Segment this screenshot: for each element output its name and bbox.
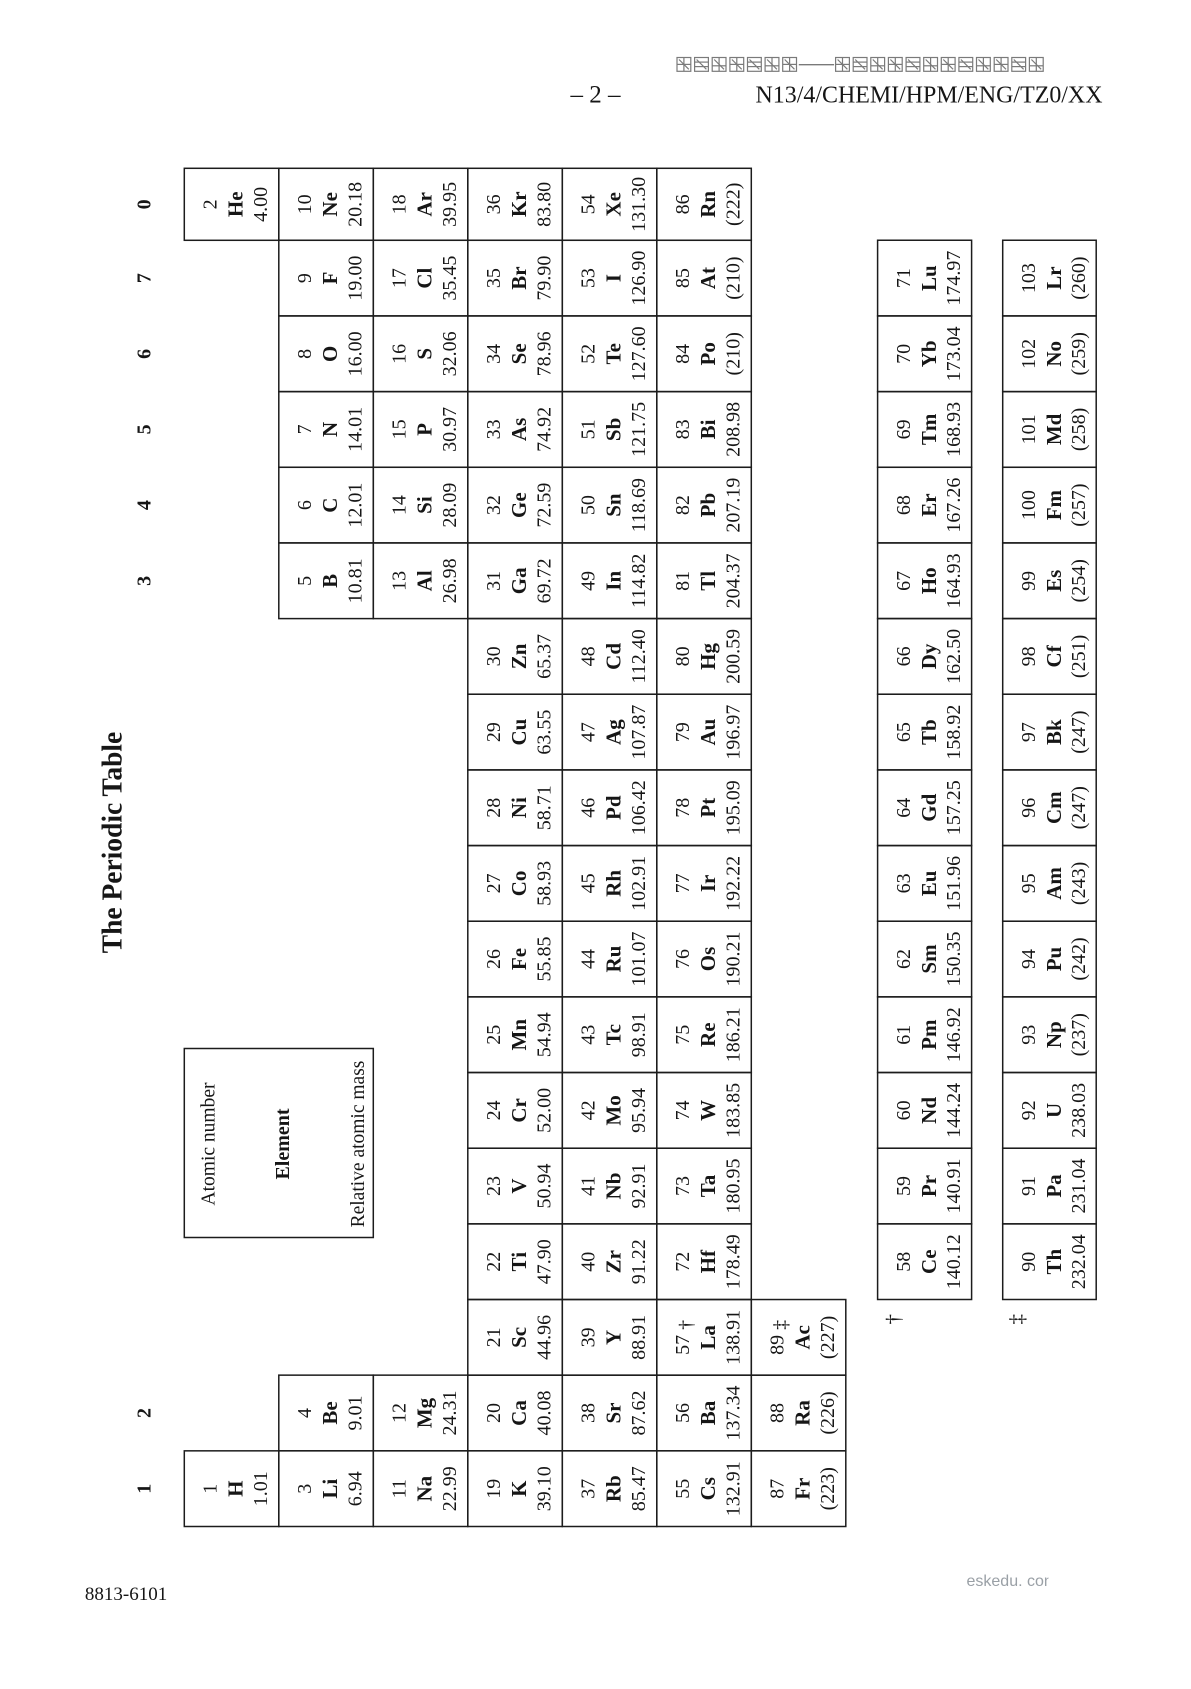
svg-text:In: In — [602, 571, 626, 591]
svg-text:88: 88 — [767, 1403, 789, 1423]
svg-text:Pd: Pd — [602, 795, 626, 820]
svg-text:48: 48 — [578, 646, 600, 666]
svg-text:14.01: 14.01 — [344, 407, 366, 452]
svg-text:22: 22 — [483, 1252, 505, 1272]
svg-text:168.93: 168.93 — [943, 402, 965, 457]
svg-text:Te: Te — [602, 343, 626, 364]
svg-text:Re: Re — [696, 1022, 720, 1046]
svg-text:114.82: 114.82 — [628, 554, 650, 608]
svg-text:Ac: Ac — [791, 1325, 815, 1350]
svg-text:112.40: 112.40 — [628, 629, 650, 683]
svg-text:Sc: Sc — [507, 1327, 531, 1348]
svg-text:79: 79 — [672, 722, 694, 742]
svg-text:Cl: Cl — [413, 267, 437, 288]
svg-text:Zn: Zn — [507, 643, 531, 669]
svg-text:U: U — [1042, 1103, 1066, 1118]
svg-text:Tc: Tc — [602, 1024, 626, 1045]
svg-text:6.94: 6.94 — [344, 1471, 366, 1506]
svg-text:Cu: Cu — [507, 718, 531, 745]
svg-text:Kr: Kr — [507, 191, 531, 217]
svg-text:12.01: 12.01 — [344, 483, 366, 528]
svg-text:144.24: 144.24 — [943, 1083, 965, 1138]
svg-text:15: 15 — [389, 419, 411, 439]
svg-text:47: 47 — [578, 722, 600, 742]
svg-text:82: 82 — [672, 495, 694, 515]
svg-text:41: 41 — [578, 1176, 600, 1196]
svg-text:174.97: 174.97 — [943, 251, 965, 306]
svg-text:Ce: Ce — [917, 1249, 941, 1274]
svg-text:eskedu. com: eskedu. com — [967, 1573, 1058, 1590]
svg-text:Th: Th — [1042, 1249, 1066, 1275]
svg-text:(259): (259) — [1068, 332, 1090, 375]
svg-text:196.97: 196.97 — [722, 705, 744, 760]
svg-text:63.55: 63.55 — [533, 710, 555, 755]
svg-text:17: 17 — [389, 268, 411, 288]
svg-text:Tb: Tb — [917, 719, 941, 745]
svg-text:B: B — [318, 574, 342, 588]
svg-text:No: No — [1042, 341, 1066, 367]
svg-text:Ir: Ir — [696, 875, 720, 893]
svg-text:137.34: 137.34 — [722, 1386, 744, 1441]
svg-text:Cd: Cd — [602, 643, 626, 670]
svg-text:79.90: 79.90 — [533, 256, 555, 301]
svg-text:– 2 –: – 2 – — [570, 82, 622, 109]
svg-text:204.37: 204.37 — [722, 553, 744, 608]
svg-text:167.26: 167.26 — [943, 478, 965, 533]
svg-text:30.97: 30.97 — [439, 407, 461, 452]
svg-text:4: 4 — [134, 500, 156, 510]
svg-text:‡: ‡ — [1005, 1314, 1029, 1325]
svg-text:(223): (223) — [817, 1467, 839, 1510]
svg-text:93: 93 — [1018, 1025, 1040, 1045]
svg-text:91.22: 91.22 — [628, 1239, 650, 1284]
svg-text:87: 87 — [767, 1479, 789, 1499]
svg-text:Fm: Fm — [1042, 489, 1066, 520]
svg-text:57 †: 57 † — [672, 1320, 698, 1355]
svg-text:18: 18 — [389, 194, 411, 214]
svg-text:Ga: Ga — [507, 567, 531, 594]
svg-text:92.91: 92.91 — [628, 1164, 650, 1209]
svg-text:157.25: 157.25 — [943, 780, 965, 835]
svg-text:Al: Al — [413, 570, 437, 591]
svg-text:150.35: 150.35 — [943, 932, 965, 987]
svg-text:Co: Co — [507, 871, 531, 897]
svg-text:207.19: 207.19 — [722, 478, 744, 533]
svg-text:5: 5 — [294, 576, 316, 586]
svg-text:81: 81 — [672, 571, 694, 591]
svg-text:132.91: 132.91 — [722, 1461, 744, 1516]
svg-text:Relative atomic mass: Relative atomic mass — [348, 1061, 369, 1228]
svg-text:W: W — [696, 1100, 720, 1121]
svg-text:Nb: Nb — [602, 1173, 626, 1200]
svg-text:33: 33 — [483, 419, 505, 439]
svg-text:68: 68 — [893, 495, 915, 515]
svg-text:V: V — [507, 1178, 531, 1193]
svg-text:1: 1 — [134, 1484, 156, 1494]
svg-text:107.87: 107.87 — [628, 705, 650, 760]
svg-text:The Periodic Table: The Periodic Table — [98, 732, 129, 954]
svg-text:20.18: 20.18 — [344, 182, 366, 227]
svg-text:(210): (210) — [722, 256, 744, 299]
svg-text:Gd: Gd — [917, 793, 941, 821]
svg-text:Md: Md — [1042, 413, 1066, 445]
svg-text:88.91: 88.91 — [628, 1315, 650, 1360]
svg-text:83.80: 83.80 — [533, 182, 555, 227]
svg-text:9: 9 — [294, 273, 316, 283]
svg-text:59: 59 — [893, 1176, 915, 1196]
svg-text:72: 72 — [672, 1252, 694, 1272]
svg-text:6: 6 — [294, 500, 316, 510]
svg-text:Na: Na — [413, 1475, 437, 1501]
svg-text:65.37: 65.37 — [533, 634, 555, 679]
svg-text:12: 12 — [389, 1403, 411, 1423]
svg-text:36: 36 — [483, 194, 505, 214]
svg-text:67: 67 — [893, 571, 915, 591]
svg-text:40: 40 — [578, 1252, 600, 1272]
svg-text:N13/4/CHEMI/HPM/ENG/TZ0/XX: N13/4/CHEMI/HPM/ENG/TZ0/XX — [756, 82, 1103, 109]
svg-text:†: † — [882, 1314, 906, 1325]
svg-text:Bi: Bi — [696, 419, 720, 439]
svg-text:Fr: Fr — [791, 1478, 815, 1500]
svg-text:Hg: Hg — [696, 642, 720, 669]
svg-text:39.10: 39.10 — [533, 1466, 555, 1511]
svg-text:C: C — [318, 498, 342, 513]
svg-text:50: 50 — [578, 495, 600, 515]
svg-text:Pm: Pm — [917, 1019, 941, 1050]
svg-text:92: 92 — [1018, 1100, 1040, 1120]
svg-text:Atomic number: Atomic number — [199, 1082, 220, 1205]
svg-text:238.03: 238.03 — [1068, 1083, 1090, 1138]
svg-text:140.12: 140.12 — [943, 1234, 965, 1289]
svg-text:180.95: 180.95 — [722, 1159, 744, 1214]
svg-text:4.00: 4.00 — [250, 187, 272, 222]
svg-text:84: 84 — [672, 344, 694, 364]
svg-text:(210): (210) — [722, 332, 744, 375]
svg-text:25: 25 — [483, 1025, 505, 1045]
svg-text:97: 97 — [1018, 722, 1040, 742]
svg-text:(251): (251) — [1068, 635, 1090, 678]
svg-text:55: 55 — [672, 1479, 694, 1499]
svg-text:30: 30 — [483, 646, 505, 666]
svg-text:78.96: 78.96 — [533, 331, 555, 376]
svg-text:232.04: 232.04 — [1068, 1234, 1090, 1289]
svg-text:26.98: 26.98 — [439, 558, 461, 603]
svg-text:95: 95 — [1018, 873, 1040, 893]
svg-text:Pb: Pb — [696, 493, 720, 518]
svg-text:89 ‡: 89 ‡ — [767, 1320, 793, 1355]
svg-text:Dy: Dy — [917, 643, 941, 669]
svg-text:Se: Se — [507, 343, 531, 364]
svg-text:94: 94 — [1018, 949, 1040, 969]
svg-text:83: 83 — [672, 419, 694, 439]
svg-text:Ta: Ta — [696, 1174, 720, 1197]
svg-text:Cr: Cr — [507, 1098, 531, 1123]
svg-text:56: 56 — [672, 1403, 694, 1423]
svg-text:Rn: Rn — [696, 191, 720, 218]
svg-text:Ca: Ca — [507, 1400, 531, 1426]
svg-text:178.49: 178.49 — [722, 1234, 744, 1289]
svg-text:35.45: 35.45 — [439, 256, 461, 301]
svg-text:Eu: Eu — [917, 870, 941, 896]
svg-text:(254): (254) — [1068, 559, 1090, 602]
svg-text:138.91: 138.91 — [722, 1310, 744, 1365]
svg-text:Pa: Pa — [1042, 1174, 1066, 1198]
svg-text:Cm: Cm — [1042, 791, 1066, 824]
svg-text:121.75: 121.75 — [628, 402, 650, 457]
svg-text:60: 60 — [893, 1100, 915, 1120]
svg-text:16: 16 — [389, 344, 411, 364]
svg-text:53: 53 — [578, 268, 600, 288]
svg-text:(226): (226) — [817, 1391, 839, 1434]
svg-text:3: 3 — [294, 1484, 316, 1494]
svg-text:10.81: 10.81 — [344, 558, 366, 603]
svg-text:43: 43 — [578, 1025, 600, 1045]
svg-text:63: 63 — [893, 873, 915, 893]
svg-text:Zr: Zr — [602, 1250, 626, 1273]
svg-text:52: 52 — [578, 344, 600, 364]
svg-text:102: 102 — [1018, 339, 1040, 369]
svg-text:27: 27 — [483, 873, 505, 893]
svg-text:65: 65 — [893, 722, 915, 742]
svg-text:Es: Es — [1042, 570, 1066, 592]
svg-text:146.92: 146.92 — [943, 1007, 965, 1062]
svg-text:(247): (247) — [1068, 710, 1090, 753]
svg-text:23: 23 — [483, 1176, 505, 1196]
svg-text:26: 26 — [483, 949, 505, 969]
svg-text:As: As — [507, 418, 531, 441]
svg-text:8: 8 — [294, 349, 316, 359]
svg-text:Be: Be — [318, 1401, 342, 1424]
svg-text:(257): (257) — [1068, 483, 1090, 526]
svg-text:Au: Au — [696, 718, 720, 745]
svg-text:Am: Am — [1042, 867, 1066, 900]
svg-text:7: 7 — [134, 273, 156, 283]
svg-text:80: 80 — [672, 646, 694, 666]
svg-text:7: 7 — [294, 424, 316, 434]
svg-text:47.90: 47.90 — [533, 1239, 555, 1284]
svg-text:85: 85 — [672, 268, 694, 288]
svg-text:Po: Po — [696, 342, 720, 365]
svg-text:Sb: Sb — [602, 418, 626, 441]
svg-text:183.85: 183.85 — [722, 1083, 744, 1138]
svg-text:Ne: Ne — [318, 192, 342, 217]
svg-text:24.31: 24.31 — [439, 1391, 461, 1436]
svg-text:44.96: 44.96 — [533, 1315, 555, 1360]
svg-text:1: 1 — [200, 1484, 222, 1494]
svg-text:231.04: 231.04 — [1068, 1159, 1090, 1214]
svg-text:Pr: Pr — [917, 1175, 941, 1197]
svg-text:39: 39 — [578, 1327, 600, 1347]
svg-text:28.09: 28.09 — [439, 483, 461, 528]
svg-text:127.60: 127.60 — [628, 326, 650, 381]
svg-text:195.09: 195.09 — [722, 780, 744, 835]
svg-text:Yb: Yb — [917, 340, 941, 367]
svg-text:3: 3 — [134, 576, 156, 586]
svg-text:Ra: Ra — [791, 1400, 815, 1426]
svg-text:P: P — [413, 423, 437, 436]
svg-text:35: 35 — [483, 268, 505, 288]
svg-text:46: 46 — [578, 798, 600, 818]
svg-text:21: 21 — [483, 1327, 505, 1347]
svg-text:86: 86 — [672, 194, 694, 214]
svg-text:Tm: Tm — [917, 413, 941, 445]
svg-text:22.99: 22.99 — [439, 1466, 461, 1511]
svg-text:(227): (227) — [817, 1316, 839, 1359]
svg-text:F: F — [318, 272, 342, 285]
svg-text:64: 64 — [893, 798, 915, 818]
svg-text:Np: Np — [1042, 1021, 1066, 1048]
svg-text:72.59: 72.59 — [533, 483, 555, 528]
svg-text:162.50: 162.50 — [943, 629, 965, 684]
svg-text:Mn: Mn — [507, 1019, 531, 1051]
svg-text:42: 42 — [578, 1100, 600, 1120]
svg-text:La: La — [696, 1325, 720, 1350]
svg-text:Ni: Ni — [507, 797, 531, 818]
svg-text:85.47: 85.47 — [628, 1466, 650, 1511]
svg-text:Ag: Ag — [602, 719, 626, 745]
svg-text:44: 44 — [578, 949, 600, 969]
svg-text:Lu: Lu — [917, 265, 941, 291]
svg-text:9.01: 9.01 — [344, 1396, 366, 1431]
svg-text:74: 74 — [672, 1100, 694, 1120]
svg-text:H: H — [224, 1481, 248, 1497]
svg-text:208.98: 208.98 — [722, 402, 744, 457]
svg-text:31: 31 — [483, 571, 505, 591]
svg-text:101.07: 101.07 — [628, 932, 650, 987]
svg-text:He: He — [224, 191, 248, 217]
svg-text:N: N — [318, 422, 342, 437]
svg-text:Mo: Mo — [602, 1095, 626, 1125]
svg-text:Bk: Bk — [1042, 719, 1066, 745]
svg-text:74.92: 74.92 — [533, 407, 555, 452]
svg-text:Er: Er — [917, 493, 941, 516]
svg-text:Pu: Pu — [1042, 946, 1066, 971]
svg-text:11: 11 — [389, 1479, 411, 1498]
svg-text:Pt: Pt — [696, 798, 720, 818]
svg-text:Ho: Ho — [917, 567, 941, 594]
svg-text:50.94: 50.94 — [533, 1164, 555, 1209]
svg-text:5: 5 — [134, 424, 156, 434]
svg-text:73: 73 — [672, 1176, 694, 1196]
svg-text:10: 10 — [294, 194, 316, 214]
svg-text:98.91: 98.91 — [628, 1012, 650, 1057]
svg-text:Mg: Mg — [413, 1397, 437, 1428]
svg-text:34: 34 — [483, 344, 505, 364]
svg-text:16.00: 16.00 — [344, 331, 366, 376]
svg-text:95.94: 95.94 — [628, 1088, 650, 1133]
svg-text:S: S — [413, 348, 437, 360]
svg-text:151.96: 151.96 — [943, 856, 965, 911]
svg-text:101: 101 — [1018, 414, 1040, 444]
svg-text:Ar: Ar — [413, 192, 437, 217]
svg-text:173.04: 173.04 — [943, 326, 965, 381]
svg-text:118.69: 118.69 — [628, 478, 650, 532]
svg-text:58.71: 58.71 — [533, 785, 555, 830]
svg-text:K: K — [507, 1480, 531, 1497]
svg-text:190.21: 190.21 — [722, 932, 744, 987]
svg-text:51: 51 — [578, 419, 600, 439]
svg-text:71: 71 — [893, 268, 915, 288]
svg-text:Os: Os — [696, 947, 720, 972]
svg-text:Element: Element — [272, 1108, 294, 1179]
svg-text:75: 75 — [672, 1025, 694, 1045]
svg-text:54: 54 — [578, 194, 600, 214]
svg-text:Ti: Ti — [507, 1252, 531, 1272]
svg-text:55.85: 55.85 — [533, 937, 555, 982]
svg-text:Sn: Sn — [602, 493, 626, 517]
svg-text:Ge: Ge — [507, 492, 531, 518]
svg-text:38: 38 — [578, 1403, 600, 1423]
svg-text:99: 99 — [1018, 571, 1040, 591]
svg-text:(243): (243) — [1068, 862, 1090, 905]
svg-text:24: 24 — [483, 1100, 505, 1120]
svg-text:Cf: Cf — [1042, 644, 1066, 667]
svg-text:2: 2 — [200, 199, 222, 209]
svg-text:186.21: 186.21 — [722, 1007, 744, 1062]
svg-text:158.92: 158.92 — [943, 705, 965, 760]
svg-text:69.72: 69.72 — [533, 558, 555, 603]
svg-text:19.00: 19.00 — [344, 256, 366, 301]
svg-text:Fe: Fe — [507, 948, 531, 970]
svg-text:102.91: 102.91 — [628, 856, 650, 911]
svg-text:29: 29 — [483, 722, 505, 742]
svg-text:(258): (258) — [1068, 408, 1090, 451]
svg-text:76: 76 — [672, 949, 694, 969]
svg-text:Xe: Xe — [602, 192, 626, 217]
svg-text:32.06: 32.06 — [439, 331, 461, 376]
svg-text:37: 37 — [578, 1479, 600, 1499]
svg-text:200.59: 200.59 — [722, 629, 744, 684]
svg-text:O: O — [318, 346, 342, 362]
svg-text:87.62: 87.62 — [628, 1391, 650, 1436]
svg-text:Rh: Rh — [602, 870, 626, 897]
svg-text:66: 66 — [893, 646, 915, 666]
svg-text:14: 14 — [389, 495, 411, 515]
svg-text:Cs: Cs — [696, 1477, 720, 1500]
svg-text:Sr: Sr — [602, 1403, 626, 1424]
svg-text:32: 32 — [483, 495, 505, 515]
svg-text:I: I — [602, 274, 626, 282]
svg-text:58: 58 — [893, 1252, 915, 1272]
svg-text:96: 96 — [1018, 798, 1040, 818]
svg-text:28: 28 — [483, 798, 505, 818]
svg-text:Y: Y — [602, 1330, 626, 1345]
svg-text:61: 61 — [893, 1025, 915, 1045]
svg-text:8813-6101: 8813-6101 — [85, 1584, 167, 1605]
svg-text:58.93: 58.93 — [533, 861, 555, 906]
svg-text:Ru: Ru — [602, 945, 626, 972]
svg-text:98: 98 — [1018, 646, 1040, 666]
svg-text:(222): (222) — [722, 183, 744, 226]
svg-text:70: 70 — [893, 344, 915, 364]
svg-text:40.08: 40.08 — [533, 1391, 555, 1436]
svg-text:192.22: 192.22 — [722, 856, 744, 911]
svg-text:0: 0 — [134, 199, 156, 209]
svg-text:Hf: Hf — [696, 1249, 720, 1273]
svg-text:Nd: Nd — [917, 1097, 941, 1124]
svg-text:(247): (247) — [1068, 786, 1090, 829]
svg-text:77: 77 — [672, 873, 694, 893]
svg-text:(242): (242) — [1068, 937, 1090, 980]
svg-text:126.90: 126.90 — [628, 251, 650, 306]
svg-text:13: 13 — [389, 571, 411, 591]
svg-text:45: 45 — [578, 873, 600, 893]
svg-text:At: At — [696, 267, 720, 289]
svg-text:91: 91 — [1018, 1176, 1040, 1196]
svg-text:54.94: 54.94 — [533, 1012, 555, 1057]
svg-text:Rb: Rb — [602, 1475, 626, 1502]
svg-text:106.42: 106.42 — [628, 780, 650, 835]
